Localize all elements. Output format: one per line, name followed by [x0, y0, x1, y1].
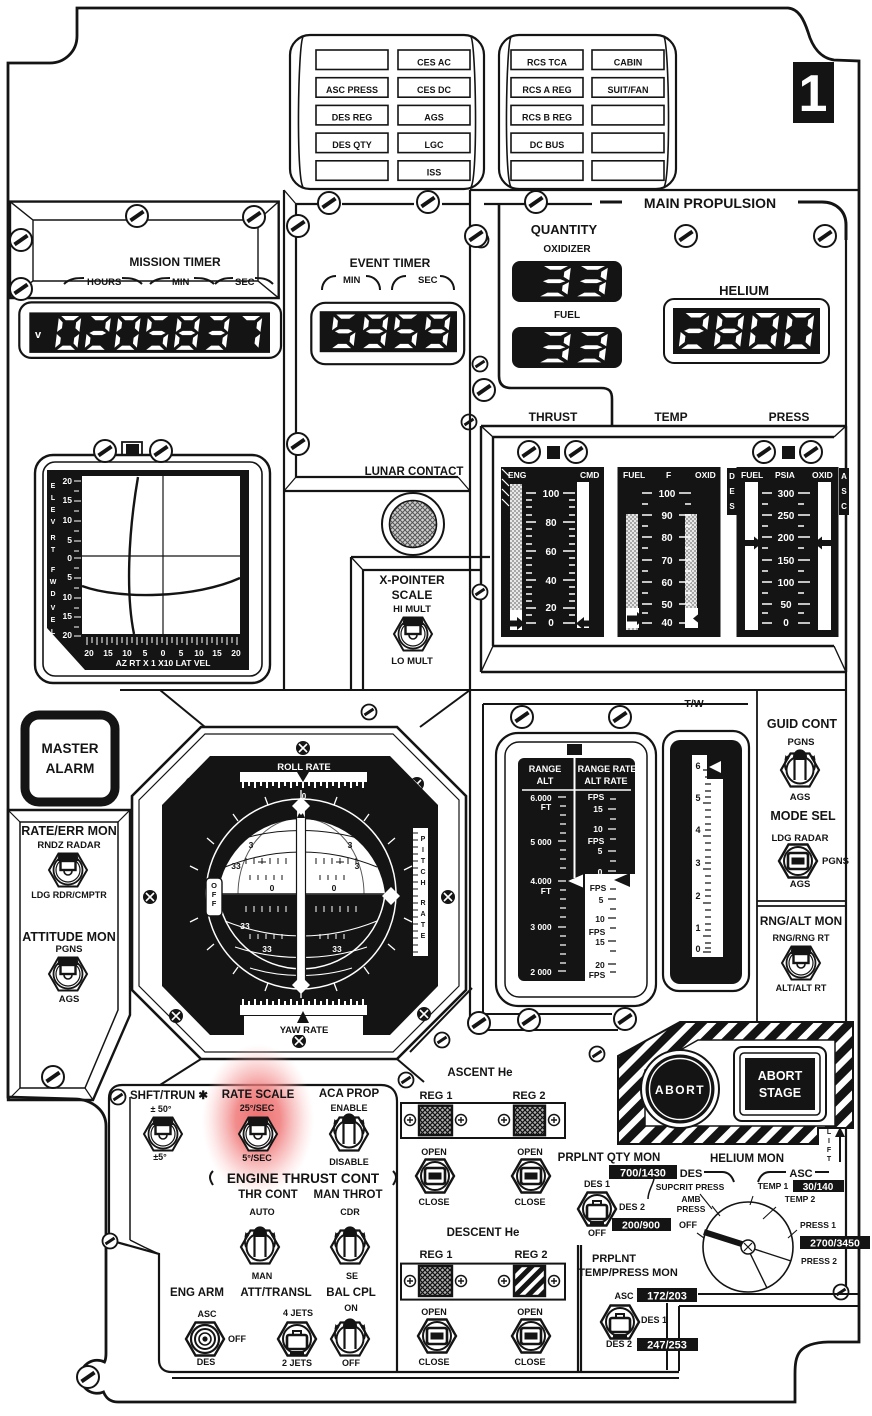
svg-text:60: 60 — [661, 578, 673, 589]
svg-text:15: 15 — [212, 648, 222, 658]
svg-text:60: 60 — [545, 547, 557, 558]
svg-text:20: 20 — [63, 476, 73, 486]
svg-text:5°/SEC: 5°/SEC — [242, 1153, 272, 1163]
svg-text:TEMP 2: TEMP 2 — [785, 1194, 816, 1204]
svg-text:E: E — [51, 617, 56, 624]
svg-text:0: 0 — [332, 883, 337, 893]
svg-text:AGS: AGS — [790, 792, 811, 803]
svg-text:15: 15 — [593, 804, 603, 814]
svg-text:OPEN: OPEN — [421, 1307, 447, 1317]
svg-text:TEMP/PRESS MON: TEMP/PRESS MON — [578, 1267, 678, 1279]
svg-text:CMD: CMD — [580, 470, 599, 480]
svg-text:L: L — [51, 495, 56, 502]
svg-text:T: T — [827, 1156, 832, 1163]
svg-text:80: 80 — [661, 533, 673, 544]
svg-text:THR CONT: THR CONT — [238, 1189, 297, 1201]
svg-text:DESCENT He: DESCENT He — [447, 1227, 520, 1239]
svg-text:F: F — [212, 890, 217, 899]
svg-text:FPS: FPS — [588, 836, 605, 846]
svg-text:DES: DES — [197, 1357, 216, 1367]
svg-text:172/203: 172/203 — [647, 1291, 687, 1303]
svg-text:10: 10 — [194, 648, 204, 658]
svg-text:PRPLNT QTY MON: PRPLNT QTY MON — [558, 1152, 661, 1164]
svg-text:3: 3 — [695, 858, 700, 868]
svg-text:AZ RT X 1 X10 LAT VEL: AZ RT X 1 X10 LAT VEL — [116, 658, 211, 668]
svg-text:AGS: AGS — [790, 879, 811, 890]
svg-text:MAIN PROPULSION: MAIN PROPULSION — [644, 195, 776, 211]
svg-text:2700/3450: 2700/3450 — [810, 1238, 860, 1250]
svg-text:2: 2 — [695, 891, 700, 901]
svg-text:OPEN: OPEN — [517, 1307, 543, 1317]
svg-text:A: A — [841, 472, 847, 481]
svg-text:15: 15 — [595, 937, 605, 947]
svg-text:33: 33 — [240, 921, 250, 931]
svg-text:FPS: FPS — [588, 792, 605, 802]
svg-text:E: E — [51, 507, 56, 514]
svg-text:MAN THROT: MAN THROT — [314, 1189, 383, 1201]
svg-text:O: O — [211, 881, 217, 890]
svg-text:HELIUM: HELIUM — [719, 283, 769, 298]
svg-text:DES QTY: DES QTY — [332, 140, 372, 150]
svg-text:OFF: OFF — [228, 1334, 246, 1344]
svg-text:RANGE: RANGE — [529, 764, 562, 774]
svg-text:W: W — [50, 579, 57, 586]
svg-text:V: V — [51, 519, 56, 526]
svg-text:50: 50 — [780, 600, 792, 611]
svg-text:THRUST: THRUST — [529, 410, 578, 424]
svg-text:FPS: FPS — [589, 970, 606, 980]
svg-text:RCS B REG: RCS B REG — [522, 113, 572, 123]
svg-text:RATE SCALE: RATE SCALE — [222, 1089, 295, 1101]
svg-text:10: 10 — [122, 648, 132, 658]
svg-text:FUEL: FUEL — [554, 310, 580, 321]
svg-text:EVENT TIMER: EVENT TIMER — [350, 256, 431, 270]
svg-text:I: I — [828, 1138, 830, 1145]
svg-text:±5°: ±5° — [153, 1152, 167, 1162]
svg-text:LDG RDR/CMPTR: LDG RDR/CMPTR — [31, 890, 107, 900]
svg-text:20: 20 — [231, 648, 241, 658]
svg-text:LGC: LGC — [425, 140, 444, 150]
svg-text:GUID CONT: GUID CONT — [767, 717, 838, 731]
svg-text:ROLL RATE: ROLL RATE — [277, 762, 330, 773]
svg-text:100: 100 — [778, 578, 795, 589]
svg-text:PRESS: PRESS — [769, 410, 810, 424]
svg-text:3: 3 — [355, 861, 360, 871]
svg-text:100: 100 — [659, 489, 676, 500]
svg-text:R: R — [50, 535, 55, 542]
svg-text:H: H — [420, 880, 425, 887]
svg-text:4.000: 4.000 — [530, 876, 552, 886]
svg-text:C: C — [841, 502, 847, 511]
svg-text:0: 0 — [67, 553, 72, 563]
svg-text:SUIT/FAN: SUIT/FAN — [607, 85, 648, 95]
svg-text:L: L — [51, 629, 56, 636]
svg-text:AUTO: AUTO — [249, 1207, 274, 1217]
svg-text:DES: DES — [680, 1168, 703, 1180]
svg-text:MISSION TIMER: MISSION TIMER — [129, 255, 221, 269]
svg-text:150: 150 — [778, 556, 795, 567]
svg-text:0: 0 — [548, 618, 554, 629]
svg-text:X-POINTER: X-POINTER — [379, 573, 445, 587]
svg-text:ATTITUDE MON: ATTITUDE MON — [22, 930, 116, 944]
svg-text:2 000: 2 000 — [530, 967, 552, 977]
svg-text:I: I — [422, 847, 424, 854]
svg-text:2 JETS: 2 JETS — [282, 1358, 312, 1368]
svg-text:LO MULT: LO MULT — [391, 656, 433, 667]
svg-text:5: 5 — [695, 793, 700, 803]
svg-text:ACA PROP: ACA PROP — [319, 1088, 380, 1100]
svg-text:T: T — [51, 547, 56, 554]
svg-text:1: 1 — [695, 923, 700, 933]
svg-text:10: 10 — [593, 824, 603, 834]
svg-text:10: 10 — [63, 592, 73, 602]
svg-text:ALT RATE: ALT RATE — [584, 776, 627, 786]
svg-text:L: L — [827, 1129, 832, 1136]
svg-text:QUANTITY: QUANTITY — [531, 222, 598, 237]
svg-text:P: P — [421, 836, 426, 843]
svg-text:CES AC: CES AC — [417, 58, 451, 68]
svg-text:T/W: T/W — [684, 698, 703, 710]
svg-text:REG 2: REG 2 — [512, 1090, 545, 1102]
svg-text:E: E — [51, 483, 56, 490]
svg-text:OFF: OFF — [342, 1358, 360, 1368]
svg-text:AGS: AGS — [424, 113, 444, 123]
svg-text:FT: FT — [541, 886, 552, 896]
svg-text:FUEL: FUEL — [741, 470, 763, 480]
svg-text:D: D — [50, 591, 55, 598]
svg-text:FT: FT — [541, 802, 552, 812]
svg-text:STAGE: STAGE — [759, 1086, 801, 1100]
svg-text:PGNS: PGNS — [56, 944, 83, 955]
svg-text:ABORT: ABORT — [655, 1083, 705, 1097]
svg-text:5: 5 — [67, 572, 72, 582]
svg-text:PRESS 1: PRESS 1 — [800, 1220, 836, 1230]
svg-text:20: 20 — [84, 648, 94, 658]
svg-text:T: T — [421, 922, 426, 929]
svg-text:SCALE: SCALE — [392, 588, 433, 602]
svg-text:TEMP 1: TEMP 1 — [758, 1181, 789, 1191]
svg-text:RNDZ RADAR: RNDZ RADAR — [37, 840, 100, 851]
svg-text:ENABLE: ENABLE — [330, 1103, 367, 1113]
svg-text:10: 10 — [595, 914, 605, 924]
svg-text:5 000: 5 000 — [530, 837, 552, 847]
svg-text:PGNS: PGNS — [822, 856, 849, 867]
svg-text:OXIDIZER: OXIDIZER — [543, 244, 591, 255]
svg-text:RATE/ERR MON: RATE/ERR MON — [21, 824, 117, 838]
svg-text:PGNS: PGNS — [788, 737, 815, 748]
svg-text:ISS: ISS — [427, 168, 442, 178]
svg-text:100: 100 — [543, 489, 560, 500]
svg-text:ASC: ASC — [197, 1309, 217, 1319]
svg-text:OPEN: OPEN — [421, 1147, 447, 1157]
svg-text:ATT/TRANSL: ATT/TRANSL — [240, 1287, 311, 1299]
svg-text:HOURS: HOURS — [87, 277, 121, 288]
svg-text:CLOSE: CLOSE — [514, 1197, 545, 1207]
svg-text:DC BUS: DC BUS — [530, 140, 565, 150]
svg-text:90: 90 — [661, 511, 673, 522]
svg-text:A: A — [420, 911, 425, 918]
svg-text:OXID: OXID — [812, 470, 833, 480]
svg-text:300: 300 — [778, 489, 795, 500]
svg-text:5: 5 — [179, 648, 184, 658]
svg-text:0: 0 — [161, 648, 166, 658]
svg-text:ASC PRESS: ASC PRESS — [326, 85, 378, 95]
svg-text:15: 15 — [103, 648, 113, 658]
svg-text:RANGE RATE: RANGE RATE — [578, 764, 637, 774]
svg-text:MODE SEL: MODE SEL — [770, 809, 836, 823]
svg-text:AGS: AGS — [59, 994, 80, 1005]
svg-text:3: 3 — [348, 840, 353, 850]
svg-text:SE: SE — [346, 1271, 358, 1281]
svg-text:5: 5 — [143, 648, 148, 658]
svg-text:F: F — [827, 1147, 832, 1154]
svg-text:50: 50 — [661, 600, 673, 611]
svg-text:SHFT/TRUN ✱: SHFT/TRUN ✱ — [130, 1090, 208, 1102]
svg-text:3: 3 — [249, 840, 254, 850]
svg-text:DES 1: DES 1 — [641, 1315, 667, 1325]
svg-text:PSIA: PSIA — [775, 470, 795, 480]
svg-text:20: 20 — [63, 630, 73, 640]
svg-text:MIN: MIN — [343, 275, 361, 286]
svg-text:D: D — [729, 472, 735, 481]
svg-text:F: F — [666, 470, 671, 480]
svg-text:MIN: MIN — [172, 277, 190, 288]
svg-text:ENGINE THRUST CONT: ENGINE THRUST CONT — [227, 1171, 380, 1186]
svg-text:SUPCRIT PRESS: SUPCRIT PRESS — [656, 1182, 725, 1192]
svg-text:80: 80 — [545, 518, 557, 529]
svg-text:RNG/ALT MON: RNG/ALT MON — [760, 914, 842, 928]
svg-text:200/900: 200/900 — [622, 1220, 660, 1232]
svg-text:S: S — [841, 487, 847, 496]
svg-text:40: 40 — [545, 576, 557, 587]
svg-text:S: S — [729, 502, 735, 511]
svg-text:SEC: SEC — [418, 275, 438, 286]
svg-text:OFF: OFF — [588, 1228, 606, 1238]
svg-text:BAL CPL: BAL CPL — [326, 1287, 376, 1299]
svg-text:PRPLNT: PRPLNT — [592, 1253, 636, 1265]
svg-text:ENG ARM: ENG ARM — [170, 1287, 224, 1299]
svg-text:25°/SEC: 25°/SEC — [240, 1103, 275, 1113]
svg-text:HELIUM MON: HELIUM MON — [710, 1153, 784, 1165]
svg-text:REG 2: REG 2 — [514, 1249, 547, 1261]
svg-text:15: 15 — [63, 495, 73, 505]
svg-text:ALT/ALT RT: ALT/ALT RT — [776, 983, 827, 993]
svg-text:HI MULT: HI MULT — [393, 604, 431, 615]
svg-text:33: 33 — [231, 861, 241, 871]
svg-text:ALT: ALT — [537, 776, 554, 786]
svg-text:DES REG: DES REG — [332, 113, 373, 123]
svg-text:CDR: CDR — [340, 1207, 360, 1217]
svg-text:V: V — [51, 605, 56, 612]
svg-text:CABIN: CABIN — [614, 58, 643, 68]
svg-text:RCS A REG: RCS A REG — [522, 85, 571, 95]
svg-text:0: 0 — [270, 883, 275, 893]
svg-text:ABORT: ABORT — [758, 1069, 803, 1083]
svg-text:OFF: OFF — [679, 1220, 697, 1230]
svg-text:DISABLE: DISABLE — [329, 1157, 369, 1167]
svg-text:LDG RADAR: LDG RADAR — [772, 833, 829, 844]
svg-text:10: 10 — [63, 515, 73, 525]
svg-text:PRESS: PRESS — [677, 1204, 706, 1214]
svg-text:AMB: AMB — [681, 1194, 700, 1204]
svg-text:T: T — [421, 858, 426, 865]
svg-text:FPS: FPS — [590, 883, 607, 893]
svg-text:ASCENT He: ASCENT He — [447, 1067, 512, 1079]
svg-text:0: 0 — [783, 618, 789, 629]
svg-text:OPEN: OPEN — [517, 1147, 543, 1157]
svg-text:CLOSE: CLOSE — [418, 1357, 449, 1367]
svg-text:REG 1: REG 1 — [419, 1249, 452, 1261]
svg-text:CLOSE: CLOSE — [418, 1197, 449, 1207]
svg-text:MAN: MAN — [252, 1271, 273, 1281]
svg-text:4 JETS: 4 JETS — [283, 1308, 313, 1318]
svg-text:C: C — [420, 869, 425, 876]
svg-text:250: 250 — [778, 511, 795, 522]
svg-text:± 50°: ± 50° — [150, 1104, 171, 1114]
svg-text:CES DC: CES DC — [417, 85, 452, 95]
svg-text:30/140: 30/140 — [803, 1182, 834, 1193]
svg-text:OXID: OXID — [695, 470, 716, 480]
svg-text:20: 20 — [545, 603, 557, 614]
svg-text:RNG/RNG RT: RNG/RNG RT — [773, 933, 830, 943]
svg-text:LUNAR CONTACT: LUNAR CONTACT — [365, 466, 464, 478]
svg-text:ON: ON — [344, 1303, 358, 1313]
svg-text:70: 70 — [661, 556, 673, 567]
svg-text:R: R — [420, 900, 425, 907]
svg-text:15: 15 — [63, 611, 73, 621]
svg-text:FPS: FPS — [589, 927, 606, 937]
svg-text:YAW RATE: YAW RATE — [280, 1025, 329, 1036]
svg-text:40: 40 — [661, 618, 673, 629]
svg-text:200: 200 — [778, 533, 795, 544]
svg-text:DES 2: DES 2 — [606, 1339, 632, 1349]
svg-text:33: 33 — [332, 944, 342, 954]
svg-text:E: E — [729, 487, 735, 496]
svg-text:PRESS 2: PRESS 2 — [801, 1256, 837, 1266]
svg-text:4: 4 — [695, 825, 700, 835]
svg-text:5: 5 — [599, 895, 604, 905]
svg-text:247/253: 247/253 — [647, 1340, 687, 1352]
svg-text:v: v — [35, 329, 42, 341]
svg-text:ASC: ASC — [614, 1291, 634, 1301]
svg-text:6: 6 — [695, 761, 700, 771]
svg-text:FUEL: FUEL — [623, 470, 645, 480]
svg-text:ALARM: ALARM — [46, 761, 95, 776]
svg-text:5: 5 — [67, 535, 72, 545]
svg-text:0: 0 — [695, 944, 700, 954]
svg-text:F: F — [51, 567, 56, 574]
svg-text:ENG: ENG — [508, 470, 527, 480]
svg-text:700/1430: 700/1430 — [620, 1168, 666, 1180]
svg-text:DES 2: DES 2 — [619, 1202, 645, 1212]
svg-text:RCS TCA: RCS TCA — [527, 58, 567, 68]
svg-text:ASC: ASC — [789, 1168, 812, 1180]
svg-text:E: E — [421, 933, 426, 940]
svg-text:SEC: SEC — [235, 277, 255, 288]
svg-text:CLOSE: CLOSE — [514, 1357, 545, 1367]
svg-text:5: 5 — [598, 846, 603, 856]
svg-text:TEMP: TEMP — [654, 410, 687, 424]
svg-text:3 000: 3 000 — [530, 922, 552, 932]
svg-text:MASTER: MASTER — [42, 741, 99, 756]
svg-text:F: F — [212, 899, 217, 908]
svg-text:33: 33 — [262, 944, 272, 954]
svg-text:20: 20 — [595, 960, 605, 970]
svg-text:REG 1: REG 1 — [419, 1090, 452, 1102]
svg-text:DES 1: DES 1 — [584, 1179, 610, 1189]
svg-text:1: 1 — [799, 65, 828, 123]
